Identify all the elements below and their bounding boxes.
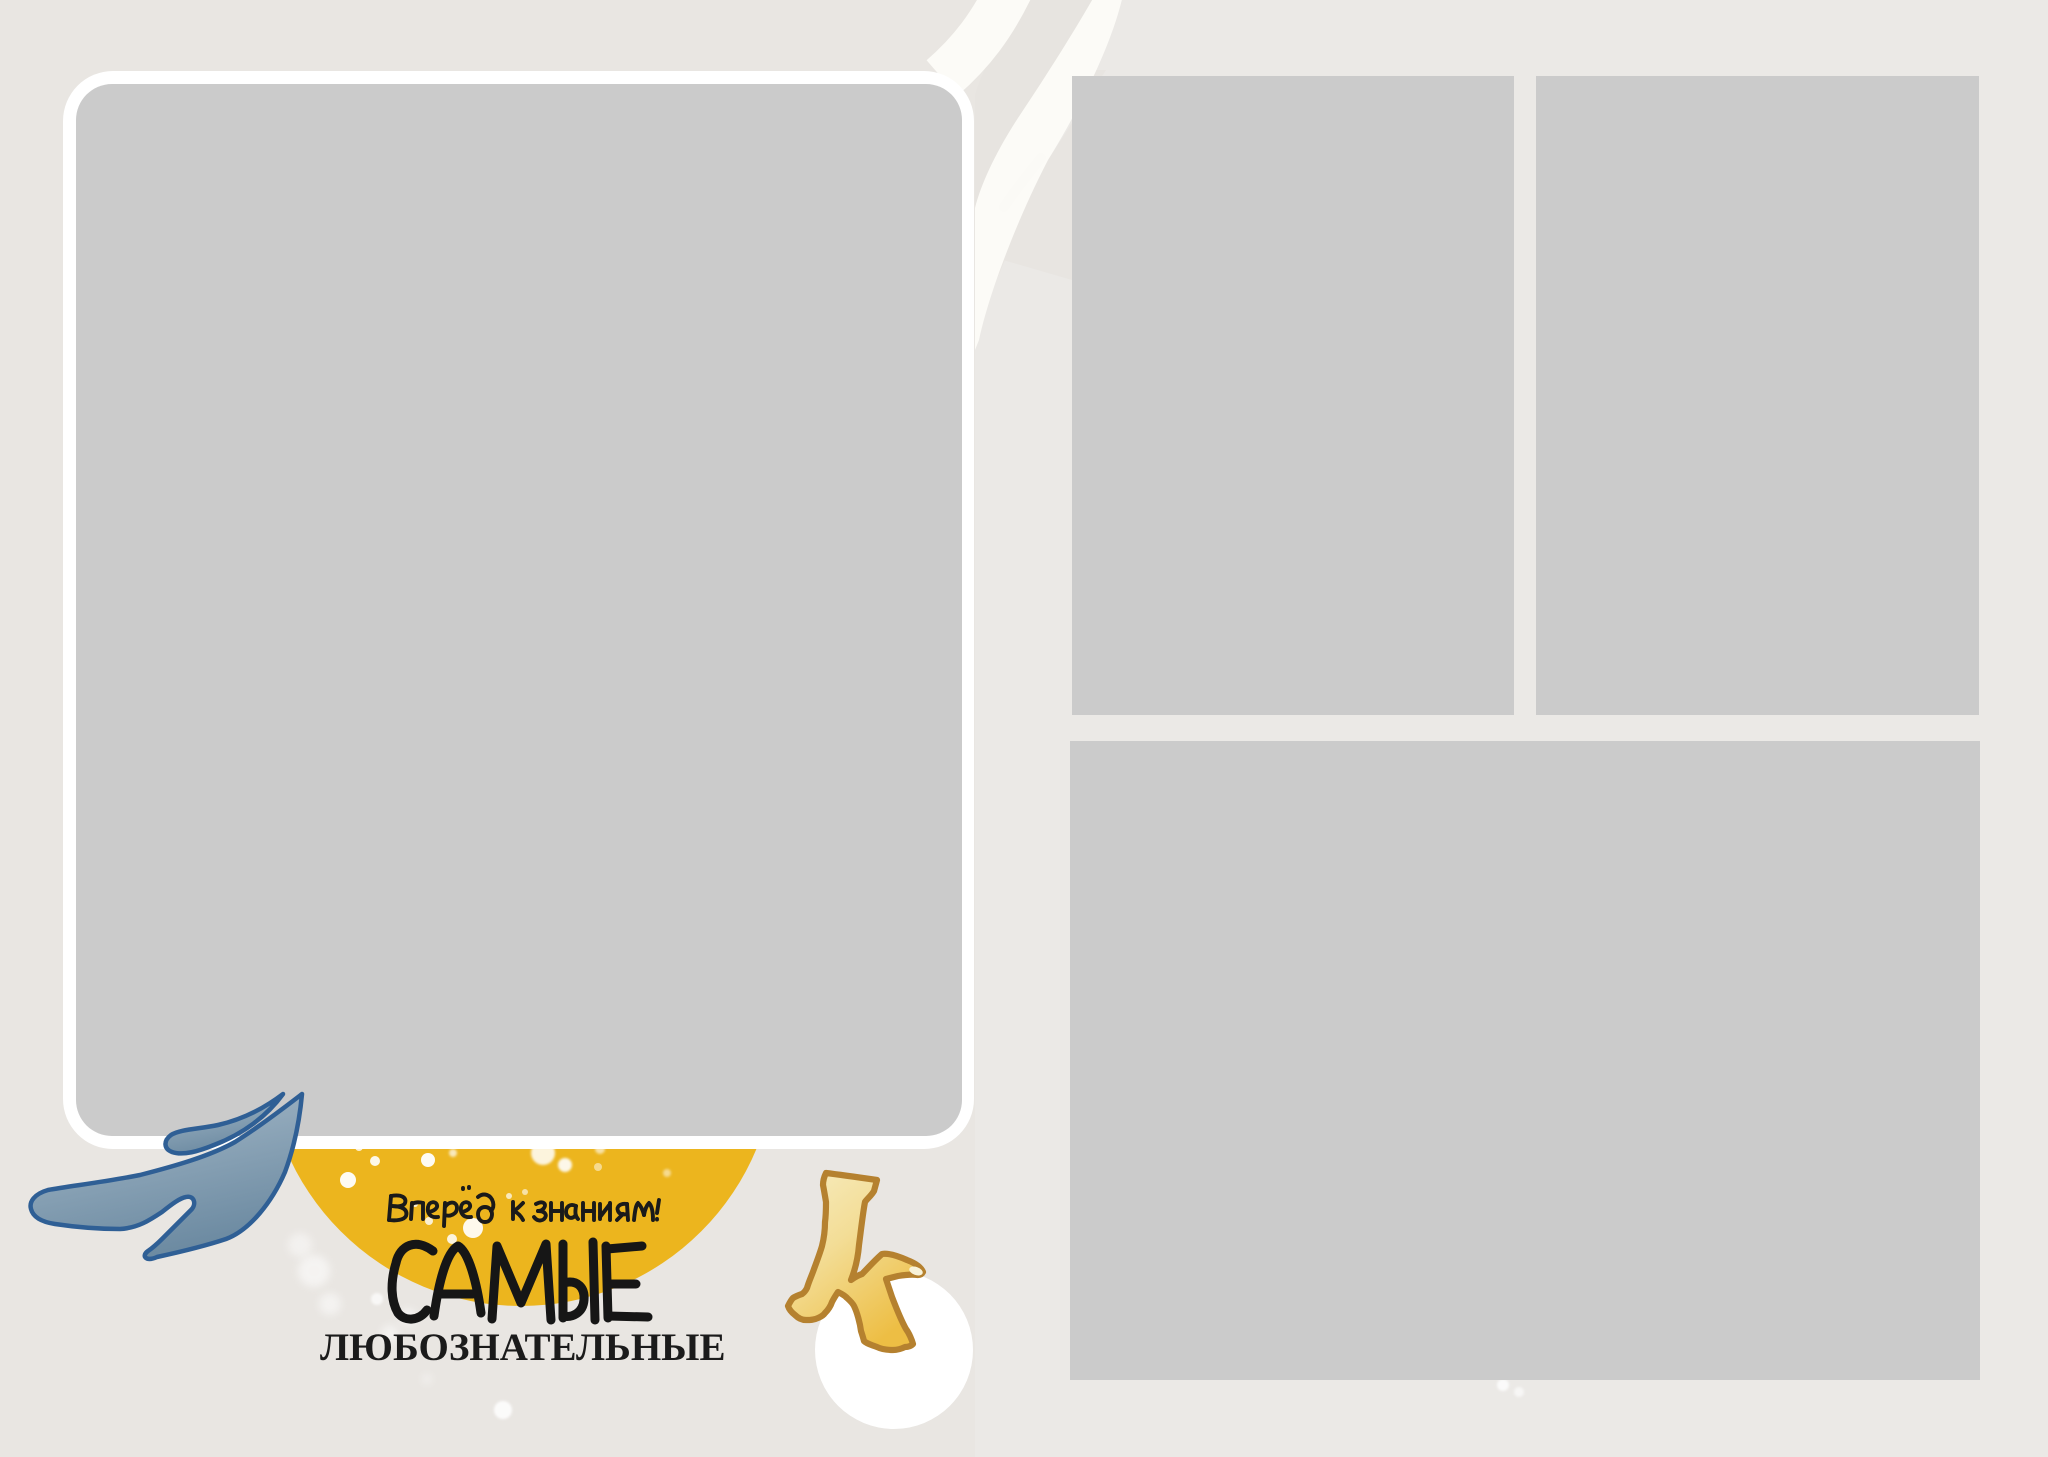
svg-text:ЛЮБОЗНАТЕЛЬНЫЕ: ЛЮБОЗНАТЕЛЬНЫЕ: [320, 1326, 725, 1369]
